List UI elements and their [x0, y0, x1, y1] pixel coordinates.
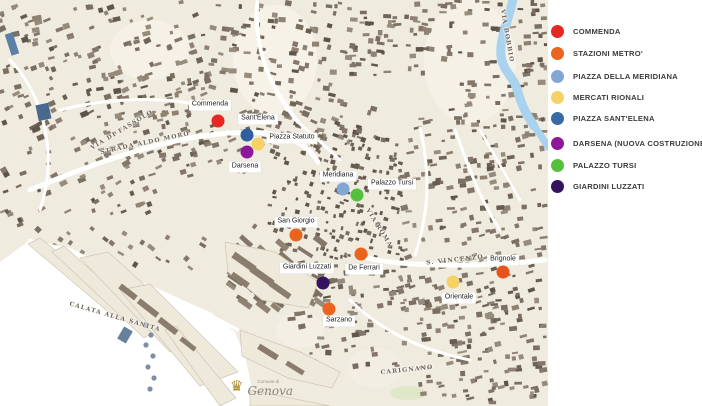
- legend-label-piazza-della-meridiana: PIAZZA DELLA MERIDIANA: [573, 72, 678, 81]
- marker-de-ferrari[interactable]: [355, 248, 368, 261]
- legend-item-palazzo-tursi: PALAZZO TURSI: [551, 158, 636, 172]
- legend-item-mercati-rionali: MERCATI RIONALI: [551, 90, 644, 104]
- genoa-map-screenshot: STRADA ALDO MOROVIA DI FASSOLOCALATA ALL…: [0, 0, 702, 406]
- marker-darsena[interactable]: [241, 146, 254, 159]
- marker-meridiana[interactable]: [337, 183, 350, 196]
- legend-label-palazzo-tursi: PALAZZO TURSI: [573, 161, 636, 170]
- map-label-piazza-statuto: Piazza Statuto: [266, 133, 317, 144]
- map-label-giardini-luzzati: Giardini Luzzati: [280, 263, 334, 274]
- legend: COMMENDASTAZIONI METRO'PIAZZA DELLA MERI…: [548, 0, 702, 406]
- marker-piazza-statuto[interactable]: [252, 138, 265, 151]
- genova-logo: ♛ Comune di Genova: [230, 380, 293, 397]
- legend-item-stazioni-metro: STAZIONI METRO': [551, 46, 643, 60]
- legend-label-darsena-nuova-costruzione: DARSENA (NUOVA COSTRUZIONE): [573, 139, 702, 148]
- marker-brignole[interactable]: [497, 266, 510, 279]
- map-label-orientale: Orientale: [442, 293, 476, 304]
- legend-dot-giardini-luzzati: [551, 180, 564, 193]
- legend-dot-commenda: [551, 25, 564, 38]
- legend-item-piazza-della-meridiana: PIAZZA DELLA MERIDIANA: [551, 69, 678, 83]
- map-label-darsena: Darsena: [229, 162, 261, 173]
- map-label-commenda: Commenda: [189, 100, 231, 111]
- marker-orientale[interactable]: [447, 276, 460, 289]
- legend-dot-palazzo-tursi: [551, 159, 564, 172]
- marker-palazzo-tursi[interactable]: [351, 189, 364, 202]
- legend-item-giardini-luzzati: GIARDINI LUZZATI: [551, 179, 644, 193]
- legend-label-piazza-sant-elena: PIAZZA SANT'ELENA: [573, 114, 655, 123]
- legend-label-stazioni-metro: STAZIONI METRO': [573, 49, 643, 58]
- map-label-meridiana: Meridiana: [320, 171, 357, 182]
- map-label-sarzano: Sarzano: [323, 316, 355, 327]
- city-map: STRADA ALDO MOROVIA DI FASSOLOCALATA ALL…: [0, 0, 548, 406]
- map-label-palazzo-tursi: Palazzo Tursi: [368, 179, 416, 190]
- map-label-brignole: Brignole: [487, 255, 519, 266]
- marker-giardini-luzzati[interactable]: [317, 277, 330, 290]
- map-label-san-giorgio: San Giorgio: [275, 217, 318, 228]
- legend-dot-piazza-sant-elena: [551, 112, 564, 125]
- logo-genova: Genova: [247, 385, 293, 397]
- legend-item-commenda: COMMENDA: [551, 24, 621, 38]
- marker-commenda[interactable]: [212, 115, 225, 128]
- legend-label-commenda: COMMENDA: [573, 27, 621, 36]
- map-base-art: [0, 0, 548, 406]
- legend-item-piazza-sant-elena: PIAZZA SANT'ELENA: [551, 111, 655, 125]
- legend-dot-piazza-della-meridiana: [551, 70, 564, 83]
- marker-san-giorgio[interactable]: [290, 229, 303, 242]
- legend-item-darsena-nuova-costruzione: DARSENA (NUOVA COSTRUZIONE): [551, 136, 702, 150]
- map-label-sant-elena: Sant'Elena: [238, 114, 278, 125]
- crown-icon: ♛: [230, 380, 243, 394]
- legend-dot-stazioni-metro: [551, 47, 564, 60]
- legend-label-giardini-luzzati: GIARDINI LUZZATI: [573, 182, 644, 191]
- legend-dot-mercati-rionali: [551, 91, 564, 104]
- map-label-de-ferrari: De Ferrari: [345, 264, 383, 275]
- legend-label-mercati-rionali: MERCATI RIONALI: [573, 93, 644, 102]
- genova-logo-text: Comune di Genova: [247, 380, 293, 397]
- legend-dot-darsena-nuova-costruzione: [551, 137, 564, 150]
- marker-sarzano[interactable]: [323, 303, 336, 316]
